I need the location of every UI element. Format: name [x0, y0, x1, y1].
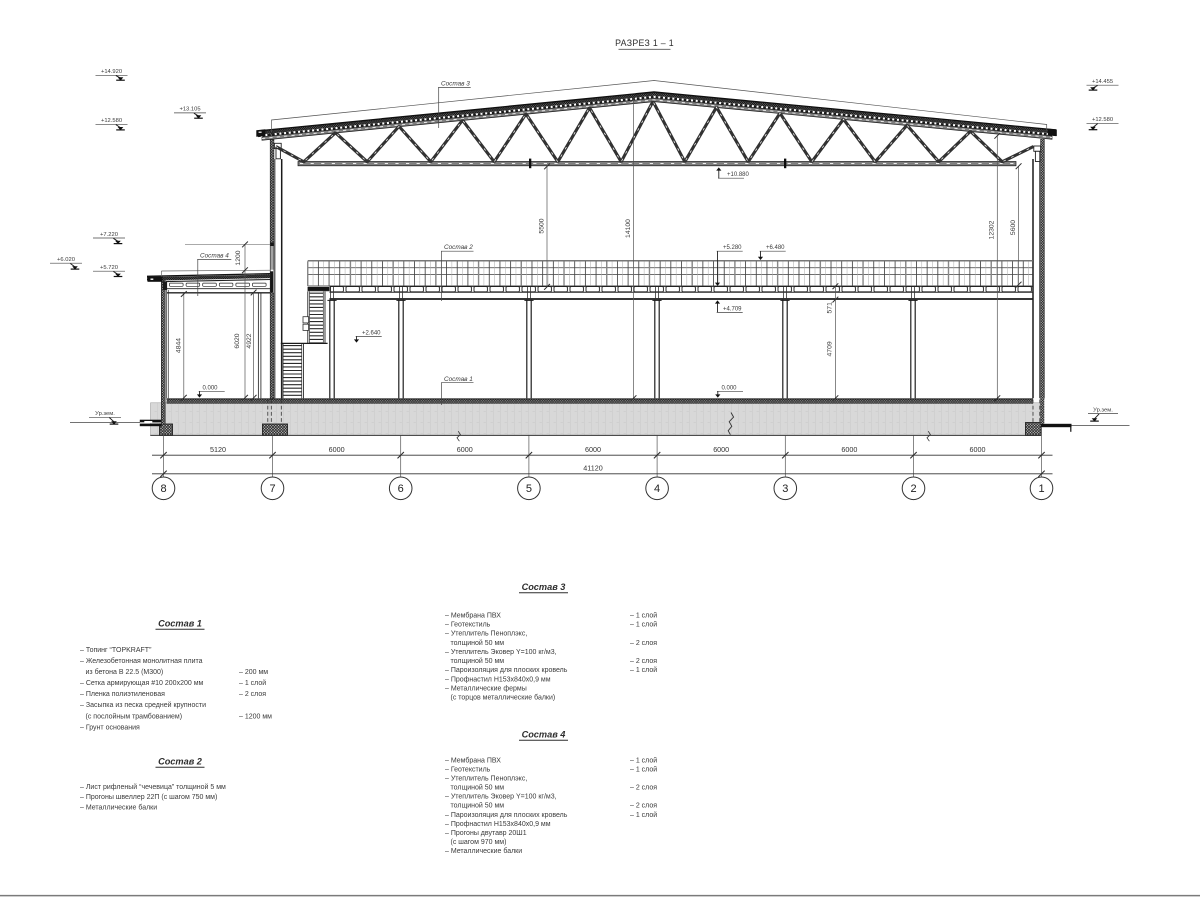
- svg-text:3: 3: [782, 483, 788, 495]
- svg-text:– Металлические балки: – Металлические балки: [80, 803, 157, 811]
- svg-text:5: 5: [526, 483, 532, 495]
- svg-text:– Пленка полиэтиленовая: – Пленка полиэтиленовая: [80, 691, 165, 698]
- svg-text:6000: 6000: [713, 445, 729, 454]
- svg-text:7: 7: [269, 483, 275, 495]
- svg-text:+14.455: +14.455: [1092, 79, 1113, 85]
- svg-text:– Пароизоляция для плоских кро: – Пароизоляция для плоских кровель: [445, 812, 568, 819]
- svg-text:РАЗРЕЗ 1 – 1: РАЗРЕЗ 1 – 1: [615, 38, 674, 48]
- svg-text:толщиной 50 мм: толщиной 50 мм: [451, 784, 505, 792]
- svg-text:– 1 слой: – 1 слой: [630, 811, 657, 819]
- svg-text:4844: 4844: [175, 338, 182, 353]
- svg-text:Состав 1: Состав 1: [444, 376, 473, 383]
- svg-text:– 1 слой: – 1 слой: [239, 679, 266, 687]
- svg-text:Состав 2: Состав 2: [444, 244, 473, 251]
- svg-text:– Металлические фермы: – Металлические фермы: [445, 685, 527, 692]
- svg-text:1200: 1200: [235, 250, 242, 265]
- svg-text:6000: 6000: [457, 445, 473, 454]
- svg-text:+13.105: +13.105: [179, 107, 200, 113]
- svg-text:4922: 4922: [246, 333, 253, 348]
- svg-text:– Сетка армирующая #10 200х200: – Сетка армирующая #10 200х200 мм: [80, 680, 204, 687]
- svg-text:– 200 мм: – 200 мм: [239, 669, 268, 676]
- svg-text:+5.720: +5.720: [100, 265, 118, 271]
- svg-text:Состав 1: Состав 1: [158, 619, 202, 629]
- svg-text:+10.880: +10.880: [727, 172, 750, 178]
- svg-text:+2.640: +2.640: [362, 330, 381, 336]
- svg-text:– Утеплитель Пеноплэкс,: – Утеплитель Пеноплэкс,: [445, 631, 527, 638]
- svg-text:– 1 слой: – 1 слой: [630, 766, 657, 774]
- svg-text:Состав 4: Состав 4: [522, 730, 566, 740]
- svg-text:толщиной 50 мм: толщиной 50 мм: [451, 657, 505, 665]
- svg-text:– Железобетонная монолитная п: – Железобетонная монолитная плита: [80, 657, 203, 665]
- svg-text:+4.709: +4.709: [723, 306, 742, 312]
- svg-text:8: 8: [160, 483, 166, 495]
- svg-text:– 1 слой: – 1 слой: [630, 666, 657, 674]
- svg-text:Состав 4: Состав 4: [200, 252, 229, 259]
- svg-text:+5.280: +5.280: [723, 245, 742, 251]
- svg-text:– Геотекстиль: – Геотекстиль: [445, 622, 491, 629]
- svg-text:– Топинг “TOPKRAFT”: – Топинг “TOPKRAFT”: [80, 647, 152, 654]
- svg-text:– Прогоны швеллер 22П (с шагом: – Прогоны швеллер 22П (с шагом 750 мм): [80, 794, 217, 801]
- svg-text:5120: 5120: [210, 445, 226, 454]
- svg-text:– 2 слоя: – 2 слоя: [630, 658, 657, 665]
- svg-text:– Утеплитель Эковер Y=100 кг/м: – Утеплитель Эковер Y=100 кг/м3,: [445, 649, 557, 656]
- svg-text:(с торцов металлические балки): (с торцов металлические балки): [451, 694, 556, 702]
- svg-text:Ур.зем.: Ур.зем.: [95, 411, 115, 417]
- svg-text:+12.580: +12.580: [101, 118, 122, 124]
- svg-text:6000: 6000: [970, 445, 986, 454]
- svg-text:– Геотекстиль: – Геотекстиль: [445, 767, 491, 774]
- svg-text:– Грунт основания: – Грунт основания: [80, 724, 140, 731]
- svg-text:– Засыпка из песка средней кру: – Засыпка из песка средней крупности: [80, 701, 206, 709]
- svg-text:5600: 5600: [1010, 220, 1017, 235]
- svg-text:– 1 слой: – 1 слой: [630, 612, 657, 620]
- svg-text:– Мембрана ПВХ: – Мембрана ПВХ: [445, 612, 501, 620]
- svg-text:4: 4: [654, 483, 660, 495]
- svg-text:+6.480: +6.480: [766, 245, 785, 251]
- svg-text:– Пароизоляция для плоских кро: – Пароизоляция для плоских кровель: [445, 667, 568, 674]
- svg-text:– Утеплитель Пеноплэкс,: – Утеплитель Пеноплэкс,: [445, 776, 527, 783]
- svg-text:1: 1: [1038, 483, 1044, 495]
- svg-text:Состав 3: Состав 3: [441, 80, 470, 87]
- svg-text:+7.220: +7.220: [100, 232, 118, 238]
- svg-text:0.000: 0.000: [203, 385, 219, 391]
- svg-text:– 2 слоя: – 2 слоя: [630, 640, 657, 647]
- svg-text:– Утеплитель Эковер Y=100 кг/м: – Утеплитель Эковер Y=100 кг/м3,: [445, 794, 557, 801]
- svg-text:6000: 6000: [841, 445, 857, 454]
- svg-text:– 2 слоя: – 2 слоя: [239, 691, 266, 698]
- svg-text:(с шагом 970 мм): (с шагом 970 мм): [451, 839, 507, 846]
- svg-text:41120: 41120: [583, 464, 602, 473]
- svg-text:2: 2: [910, 483, 916, 495]
- svg-text:– Металлические балки: – Металлические балки: [445, 847, 522, 855]
- svg-text:– 1 слой: – 1 слой: [630, 621, 657, 629]
- svg-text:+12.580: +12.580: [1092, 117, 1113, 123]
- svg-text:– Профнастил Н153х840х0,9 мм: – Профнастил Н153х840х0,9 мм: [445, 821, 551, 828]
- svg-text:толщиной 50 мм: толщиной 50 мм: [451, 639, 505, 647]
- svg-text:0.000: 0.000: [722, 385, 738, 391]
- svg-text:– Профнастил Н153х840х0,9 мм: – Профнастил Н153х840х0,9 мм: [445, 676, 551, 683]
- svg-text:– 2 слоя: – 2 слоя: [630, 785, 657, 792]
- svg-text:+6.020: +6.020: [57, 257, 75, 263]
- svg-text:(с послойным трамбованием): (с послойным трамбованием): [86, 712, 183, 720]
- svg-text:14100: 14100: [625, 219, 632, 238]
- svg-text:6000: 6000: [329, 445, 345, 454]
- svg-text:4709: 4709: [827, 341, 834, 356]
- svg-text:из бетона В 22.5 (М300): из бетона В 22.5 (М300): [86, 668, 164, 676]
- svg-text:– 1 слой: – 1 слой: [630, 757, 657, 765]
- svg-text:Состав 2: Состав 2: [158, 757, 203, 767]
- svg-text:12302: 12302: [989, 220, 996, 239]
- svg-text:– Мембрана ПВХ: – Мембрана ПВХ: [445, 757, 501, 765]
- svg-text:6: 6: [398, 483, 404, 495]
- svg-text:– 1200 мм: – 1200 мм: [239, 713, 272, 720]
- svg-text:5500: 5500: [539, 218, 546, 233]
- svg-text:+14.920: +14.920: [101, 69, 122, 75]
- svg-text:– Лист рифленый “чечевица” тол: – Лист рифленый “чечевица” толщиной 5 мм: [80, 783, 226, 791]
- svg-text:– 2 слоя: – 2 слоя: [630, 803, 657, 810]
- svg-text:Ур.зем.: Ур.зем.: [1093, 407, 1113, 413]
- svg-text:6020: 6020: [234, 333, 241, 348]
- svg-text:толщиной 50 мм: толщиной 50 мм: [451, 802, 505, 810]
- svg-text:6000: 6000: [585, 445, 601, 454]
- svg-text:– Прогоны двутавр 20Ш1: – Прогоны двутавр 20Ш1: [445, 830, 527, 837]
- svg-text:Состав 3: Состав 3: [522, 582, 566, 592]
- svg-text:571: 571: [827, 302, 834, 314]
